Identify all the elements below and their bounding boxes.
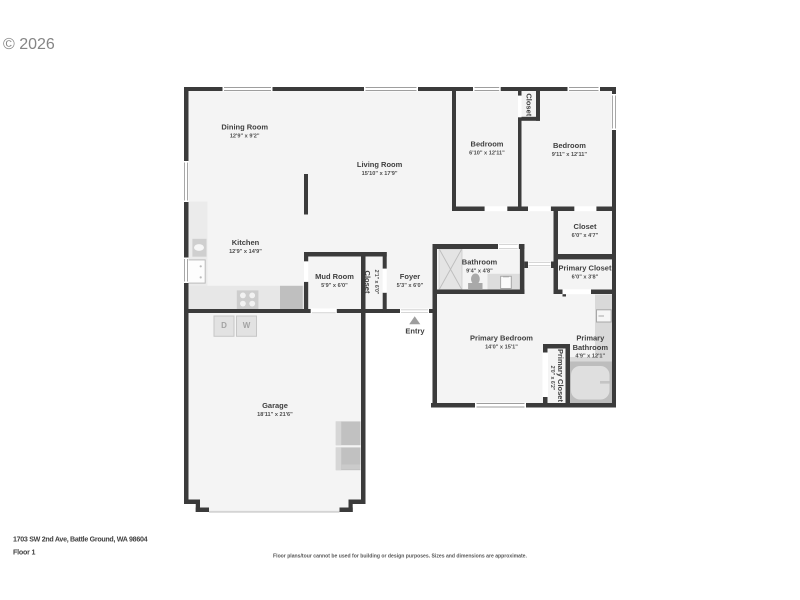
svg-text:Living Room: Living Room [357, 160, 403, 169]
svg-text:18'11" x 21'6": 18'11" x 21'6" [257, 412, 293, 418]
svg-text:Garage: Garage [262, 401, 288, 410]
svg-text:2'0" x 6'2": 2'0" x 6'2" [549, 366, 555, 391]
svg-text:Bathroom: Bathroom [573, 343, 609, 352]
svg-text:6'0" x 4'7": 6'0" x 4'7" [572, 233, 599, 239]
svg-text:2'1" x 6'0": 2'1" x 6'0" [373, 270, 379, 295]
svg-text:W: W [243, 321, 251, 330]
svg-text:9'4" x 4'8": 9'4" x 4'8" [466, 269, 493, 275]
svg-text:6'10" x 12'11": 6'10" x 12'11" [469, 151, 505, 157]
svg-text:Bedroom: Bedroom [471, 140, 504, 149]
svg-text:Primary: Primary [576, 334, 605, 343]
svg-text:5'3" x 6'0": 5'3" x 6'0" [397, 283, 424, 289]
svg-text:Primary Bedroom: Primary Bedroom [470, 334, 533, 343]
svg-text:Floor 1: Floor 1 [13, 548, 36, 556]
svg-text:Primary Closet: Primary Closet [556, 349, 565, 402]
svg-text:Foyer: Foyer [400, 272, 421, 281]
svg-text:Closet: Closet [574, 222, 597, 231]
svg-text:1703 SW 2nd Ave, Battle Ground: 1703 SW 2nd Ave, Battle Ground, WA 98604 [13, 536, 148, 544]
svg-text:5'9" x 6'0": 5'9" x 6'0" [321, 283, 348, 289]
svg-text:Entry: Entry [405, 327, 425, 336]
svg-text:Closet: Closet [363, 271, 372, 294]
svg-text:Dining Room: Dining Room [221, 123, 268, 132]
svg-text:14'0" x 15'1": 14'0" x 15'1" [485, 345, 518, 351]
svg-text:Bedroom: Bedroom [553, 141, 586, 150]
svg-text:© 2026: © 2026 [3, 36, 55, 53]
svg-text:15'10" x 17'9": 15'10" x 17'9" [362, 171, 398, 177]
svg-text:Bathroom: Bathroom [462, 258, 498, 267]
svg-text:Closet: Closet [524, 93, 533, 116]
svg-text:9'11" x 12'11": 9'11" x 12'11" [552, 152, 588, 158]
svg-text:4'9" x 12'1": 4'9" x 12'1" [575, 353, 605, 359]
svg-text:Kitchen: Kitchen [232, 238, 260, 247]
svg-text:12'9" x 9'2": 12'9" x 9'2" [230, 134, 260, 140]
svg-text:Primary Closet: Primary Closet [559, 264, 612, 273]
svg-text:12'9" x 14'9": 12'9" x 14'9" [229, 249, 262, 255]
svg-text:6'0" x 3'8": 6'0" x 3'8" [572, 275, 599, 281]
svg-text:Mud Room: Mud Room [315, 272, 354, 281]
svg-text:Floor plans/tour cannot be use: Floor plans/tour cannot be used for buil… [273, 554, 527, 560]
svg-text:D: D [221, 321, 227, 330]
